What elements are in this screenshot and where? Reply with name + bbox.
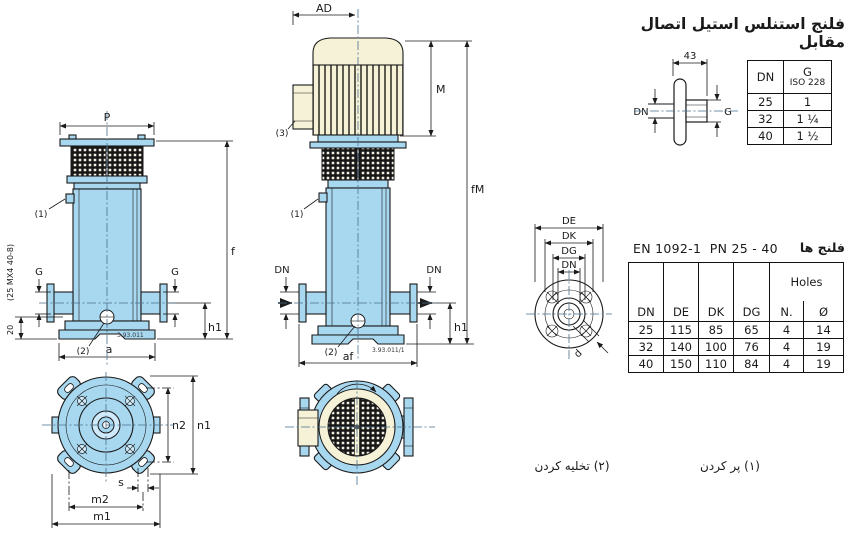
footnote-fill: (۱) پر کردن — [680, 459, 780, 473]
header-spacer — [699, 263, 734, 302]
header-spacer — [734, 263, 770, 302]
pump-side-view-bare: P (1) G G — [5, 95, 260, 385]
cell: 76 — [734, 339, 770, 356]
col-header-g: G ISO 228 — [784, 61, 832, 94]
footnote-drain: (۲) تخلیه کردن — [512, 459, 632, 473]
table-row: 40 150 110 84 4 19 — [629, 356, 844, 373]
drawing-code: 3.93.011/1 — [372, 347, 405, 354]
cell: 4 — [770, 322, 804, 339]
model-note: (25 MX4 40-8) — [6, 244, 15, 301]
label-AD: AD — [316, 2, 332, 15]
col-header-dia: Ø — [804, 301, 844, 322]
label-n2: n2 — [172, 419, 186, 432]
cell: 65 — [734, 322, 770, 339]
label-43: 43 — [684, 51, 697, 62]
flange-table: Holes DN DE DK DG N. Ø 25 115 85 65 4 14… — [628, 262, 844, 373]
counter-flange-side-view: 43 DN G — [628, 48, 743, 170]
cell: 32 — [629, 339, 664, 356]
col-header-dn: DN — [629, 301, 664, 322]
col-header-dn: DN — [748, 61, 784, 94]
label-m2: m2 — [91, 493, 109, 506]
label-G-right: G — [171, 267, 179, 278]
label-M: M — [436, 83, 446, 96]
cell: 85 — [699, 322, 734, 339]
table-row: 25 115 85 65 4 14 — [629, 322, 844, 339]
cell-dn: 40 — [748, 128, 784, 145]
table-header-row: DN DE DK DG N. Ø — [629, 301, 844, 322]
dim-h1 — [168, 303, 211, 339]
drawing-code: 3.93.011 — [117, 332, 144, 339]
cell-g: 1 ½ — [784, 128, 832, 145]
fill-plug — [304, 193, 327, 209]
pump-top-view-with-motor — [283, 378, 473, 488]
cell: 100 — [699, 339, 734, 356]
cell: 25 — [629, 322, 664, 339]
flange-front-view: DE DK DG DN d — [518, 212, 633, 382]
cell: 14 — [804, 322, 844, 339]
pump-side-view-with-motor: AD (3) M fM (1) — [268, 3, 503, 373]
counter-flange-table-wrap: DN G ISO 228 25 1 32 1 ¼ 40 1 ½ — [747, 60, 832, 145]
label-d: d — [572, 348, 584, 360]
cell: 19 — [804, 356, 844, 373]
flange-disc — [674, 79, 686, 145]
fill-plug — [49, 194, 74, 209]
holes-group-header: Holes — [770, 263, 844, 302]
cell: 140 — [664, 339, 699, 356]
motor — [293, 38, 403, 135]
note-2: (2) — [325, 348, 338, 358]
label-fM: fM — [471, 183, 484, 196]
note-1: (1) — [35, 210, 48, 220]
note-3: (3) — [276, 129, 289, 139]
label-m1: m1 — [93, 510, 111, 523]
label-DN: DN — [561, 260, 576, 271]
cell-dn: 25 — [748, 94, 784, 111]
cell: 150 — [664, 356, 699, 373]
col-header-dg: DG — [734, 301, 770, 322]
note-2: (2) — [77, 347, 90, 357]
table-header-row: DN G ISO 228 — [748, 61, 832, 94]
header-spacer — [664, 263, 699, 302]
cell: 84 — [734, 356, 770, 373]
label-DE: DE — [562, 216, 576, 227]
flange-table-wrap: Holes DN DE DK DG N. Ø 25 115 85 65 4 14… — [628, 262, 844, 373]
label-n1: n1 — [197, 419, 211, 432]
table-row: 40 1 ½ — [748, 128, 832, 145]
flange-standard-heading: EN 1092-1 PN 25 - 40 — [633, 241, 778, 256]
dim-f — [156, 141, 233, 339]
cell: 115 — [664, 322, 699, 339]
counter-flange-table: DN G ISO 228 25 1 32 1 ¼ 40 1 ½ — [747, 60, 832, 145]
label-DG: DG — [561, 246, 576, 257]
table-row: 25 1 — [748, 94, 832, 111]
terminal-box — [298, 410, 318, 446]
cell: 4 — [770, 339, 804, 356]
cell-g: 1 ¼ — [784, 111, 832, 128]
label-DN-right: DN — [426, 265, 441, 276]
col-header-g-main: G — [786, 66, 829, 78]
counter-flange-title: فلنج استنلس استیل اتصال مقابل — [600, 15, 845, 51]
note-1: (1) — [291, 210, 304, 220]
label-f: f — [231, 245, 236, 258]
table-row: 32 1 ¼ — [748, 111, 832, 128]
table-row: 32 140 100 76 4 19 — [629, 339, 844, 356]
label-s: s — [118, 476, 124, 489]
label-G-left: G — [35, 267, 43, 278]
label-DK: DK — [562, 231, 577, 242]
label-20: 20 — [6, 325, 15, 335]
cell: 19 — [804, 339, 844, 356]
table-header-top-row: Holes — [629, 263, 844, 302]
col-header-dk: DK — [699, 301, 734, 322]
flange-section-title-fa: فلنج ها — [770, 240, 845, 255]
pump-dimension-drawing-page: P (1) G G — [0, 0, 850, 537]
cell-g: 1 — [784, 94, 832, 111]
label-h1: h1 — [208, 321, 222, 334]
col-header-n: N. — [770, 301, 804, 322]
pump-top-view-bare: n2 n1 s m2 m1 — [38, 370, 248, 534]
label-G: G — [724, 107, 732, 118]
label-h1: h1 — [454, 321, 468, 334]
label-DN: DN — [633, 107, 648, 118]
cell: 4 — [770, 356, 804, 373]
label-DN-left: DN — [274, 265, 289, 276]
terminal-box — [293, 85, 313, 129]
dim-h1 — [417, 303, 456, 344]
cell: 110 — [699, 356, 734, 373]
cell-dn: 32 — [748, 111, 784, 128]
label-af: af — [343, 350, 355, 363]
header-spacer — [629, 263, 664, 302]
col-header-de: DE — [664, 301, 699, 322]
col-header-g-sub: ISO 228 — [786, 78, 829, 88]
cell: 40 — [629, 356, 664, 373]
